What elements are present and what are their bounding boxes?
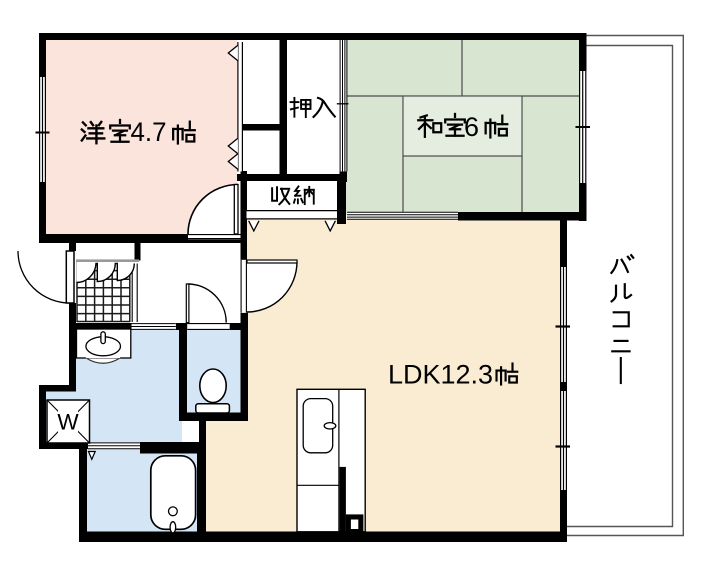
svg-text:6: 6 <box>464 112 479 142</box>
svg-text:4.7: 4.7 <box>131 117 167 147</box>
svg-text:W: W <box>57 410 79 435</box>
svg-text:LDK12.3: LDK12.3 <box>388 360 493 390</box>
